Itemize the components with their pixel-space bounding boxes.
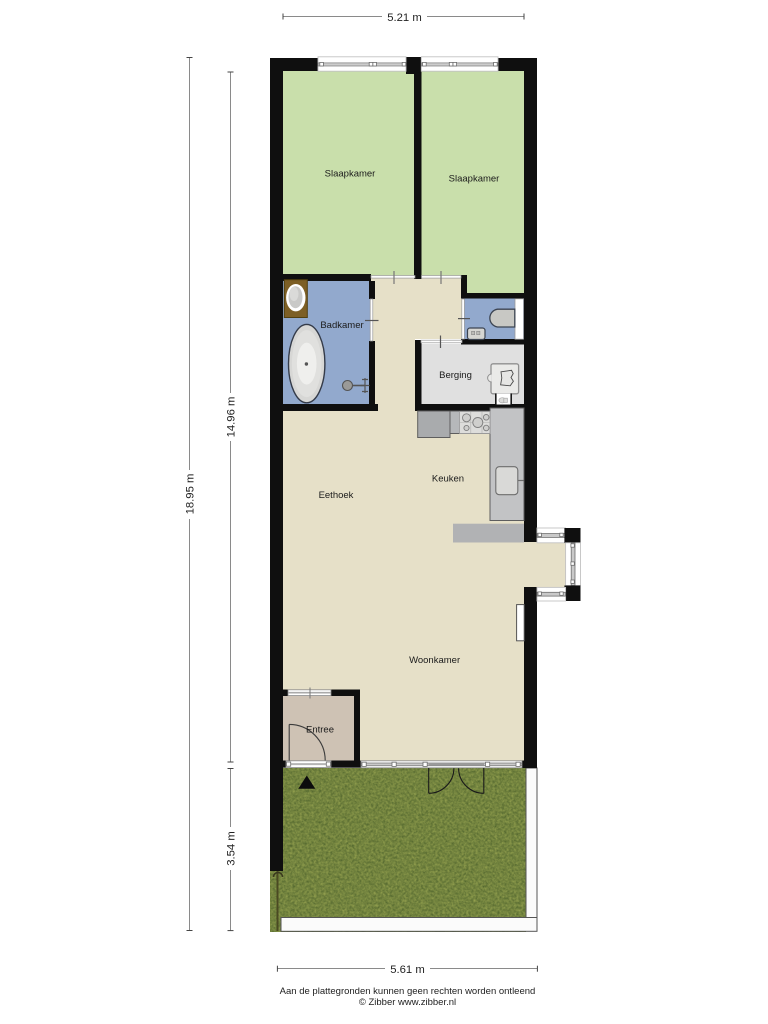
svg-text:5.61 m: 5.61 m [390, 964, 425, 976]
svg-text:Slaapkamer: Slaapkamer [449, 173, 500, 184]
svg-text:Aan de plattegronden kunnen ge: Aan de plattegronden kunnen geen rechten… [280, 986, 536, 997]
svg-text:5.21 m: 5.21 m [387, 12, 422, 24]
svg-text:18.95 m: 18.95 m [185, 474, 197, 515]
svg-text:Slaapkamer: Slaapkamer [325, 168, 376, 179]
svg-text:Berging: Berging [439, 370, 472, 381]
svg-text:Eethoek: Eethoek [319, 490, 354, 501]
svg-text:Woonkamer: Woonkamer [409, 655, 460, 666]
svg-text:© Zibber www.zibber.nl: © Zibber www.zibber.nl [359, 997, 456, 1008]
svg-text:14.96 m: 14.96 m [226, 397, 238, 438]
svg-text:Keuken: Keuken [432, 473, 464, 484]
svg-text:Entree: Entree [306, 724, 334, 735]
svg-text:3.54 m: 3.54 m [226, 831, 238, 866]
svg-text:Badkamer: Badkamer [320, 320, 363, 331]
